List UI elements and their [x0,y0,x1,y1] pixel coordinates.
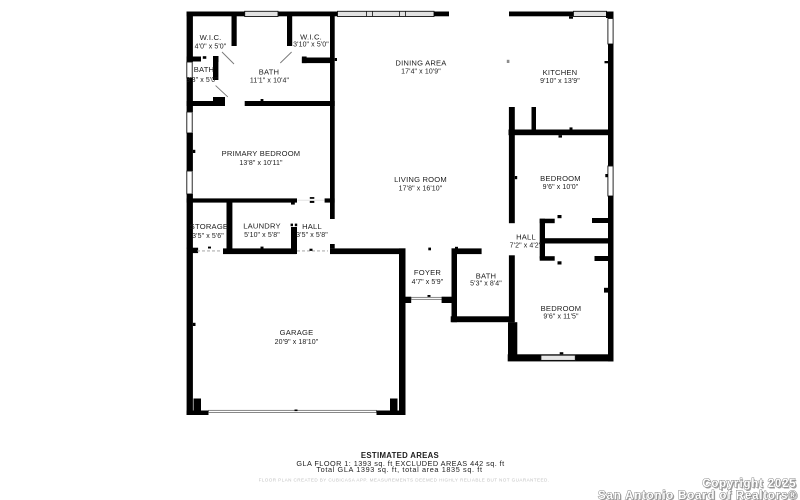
svg-text:PRIMARY BEDROOM: PRIMARY BEDROOM [222,149,301,158]
svg-text:9'10" x 13'9": 9'10" x 13'9" [540,78,580,85]
svg-text:17'4" x 10'9": 17'4" x 10'9" [401,69,441,76]
svg-text:4'7" x 5'9": 4'7" x 5'9" [412,279,444,286]
svg-text:11'1" x 10'4": 11'1" x 10'4" [250,78,290,85]
svg-text:BATH: BATH [194,65,215,74]
svg-text:W.I.C.: W.I.C. [300,33,322,42]
svg-text:STORAGE: STORAGE [190,222,228,231]
svg-text:LAUNDRY: LAUNDRY [243,221,281,230]
svg-text:DINING AREA: DINING AREA [395,59,447,68]
svg-text:3'5" x 5'6": 3'5" x 5'6" [192,233,224,240]
svg-text:13'8" x 10'11": 13'8" x 10'11" [239,160,283,167]
svg-text:3'3" x 5'0": 3'3" x 5'0" [186,77,218,84]
svg-text:GARAGE: GARAGE [280,328,314,337]
svg-text:9'6" x 11'5": 9'6" x 11'5" [543,314,579,321]
svg-text:4'0" x 5'0": 4'0" x 5'0" [195,43,227,50]
svg-text:BATH: BATH [476,272,497,281]
svg-text:Copyright 2025: Copyright 2025 [702,478,796,490]
svg-text:3'5" x 5'8": 3'5" x 5'8" [296,232,328,239]
svg-text:5'10" x 5'8": 5'10" x 5'8" [244,232,280,239]
svg-text:W.I.C.: W.I.C. [200,33,222,42]
svg-text:17'8" x 16'10": 17'8" x 16'10" [399,185,443,192]
svg-text:HALL: HALL [302,222,322,231]
svg-text:Total GLA 1393 sq. ft, total a: Total GLA 1393 sq. ft, total area 1835 s… [316,465,482,474]
svg-text:3'10" x 5'0": 3'10" x 5'0" [293,41,329,48]
svg-text:KITCHEN: KITCHEN [543,68,578,77]
svg-text:7'2" x 4'2": 7'2" x 4'2" [510,243,542,250]
svg-text:BEDROOM: BEDROOM [540,174,581,183]
svg-text:FOYER: FOYER [414,268,441,277]
svg-text:9'6" x 10'0": 9'6" x 10'0" [543,184,579,191]
svg-text:LIVING ROOM: LIVING ROOM [394,175,447,184]
svg-text:BEDROOM: BEDROOM [541,304,582,313]
svg-text:5'3" x 8'4": 5'3" x 8'4" [470,281,502,288]
svg-text:FLOOR PLAN CREATED BY CUBICASA: FLOOR PLAN CREATED BY CUBICASA APP. MEAS… [259,478,550,483]
svg-text:BATH: BATH [259,68,280,77]
svg-text:HALL: HALL [516,233,536,242]
svg-text:San Antonio Board of Realtors®: San Antonio Board of Realtors® [598,490,797,500]
svg-text:20'9" x 18'10": 20'9" x 18'10" [275,339,319,346]
